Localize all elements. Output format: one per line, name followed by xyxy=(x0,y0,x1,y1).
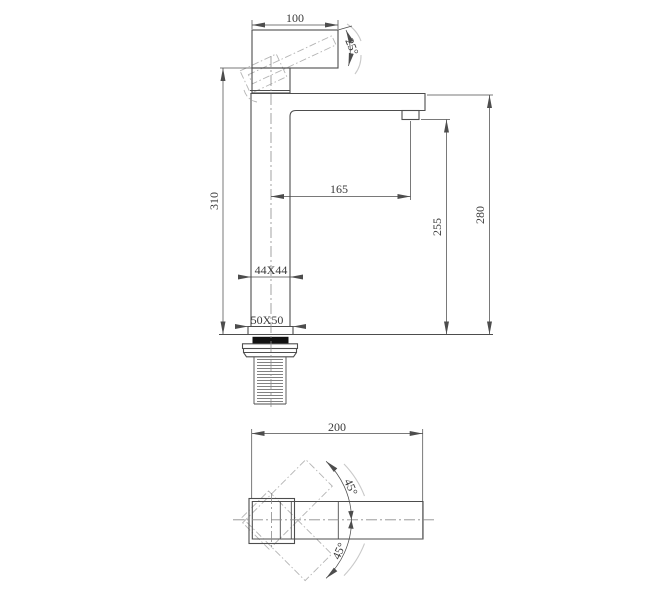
dim-165-label: 165 xyxy=(330,182,348,196)
dim-200-label: 200 xyxy=(328,420,346,434)
dim-45-upper-label: 45° xyxy=(341,476,361,497)
faucet-dimension-drawing: 100 25° 310 165 255 xyxy=(0,0,670,600)
dim-handle-angle: 25° xyxy=(338,26,362,66)
dim-310-label: 310 xyxy=(207,192,221,210)
spout-plan-outline xyxy=(252,502,423,540)
phantom-lever-plus45 xyxy=(243,460,333,550)
dim-255-label: 255 xyxy=(430,218,444,236)
dim-45-lower-label: 45° xyxy=(329,540,349,561)
phantom-lever-neck xyxy=(240,54,287,94)
front-view: 100 25° 310 165 255 xyxy=(207,11,493,407)
arc-mid-arrow-upper xyxy=(348,511,353,520)
thread-lines xyxy=(257,360,283,402)
dim-spout-reach: 165 xyxy=(271,121,411,200)
dim-25-label: 25° xyxy=(342,36,361,57)
dim-overall-length: 200 xyxy=(252,420,423,538)
phantom-lever-bar xyxy=(248,36,336,84)
dim-44x44-label: 44X44 xyxy=(255,263,288,277)
dim-handle-length: 100 xyxy=(252,11,338,29)
washer-plate xyxy=(243,344,298,349)
dim-100-label: 100 xyxy=(286,11,304,25)
body-spout-outline xyxy=(251,94,425,327)
aerator xyxy=(402,111,419,120)
locknut xyxy=(244,349,297,357)
dim-total-height: 310 xyxy=(207,68,252,335)
dim-outlet-height: 255 xyxy=(421,120,450,335)
rubber-gasket xyxy=(253,337,289,344)
dim-280-label: 280 xyxy=(473,206,487,224)
phantom-tip-arc-lower xyxy=(355,55,361,74)
dim-top-height: 280 xyxy=(427,95,493,335)
dim-50x50-label: 50X50 xyxy=(251,313,284,327)
dim-base-section: 50X50 xyxy=(240,313,301,327)
base-plate xyxy=(248,327,293,335)
arc-mid-arrow-lower xyxy=(348,520,353,529)
top-view: 200 45° 45° xyxy=(233,420,437,581)
technical-drawing-canvas: 100 25° 310 165 255 xyxy=(0,0,670,600)
lever-outline xyxy=(252,30,338,68)
